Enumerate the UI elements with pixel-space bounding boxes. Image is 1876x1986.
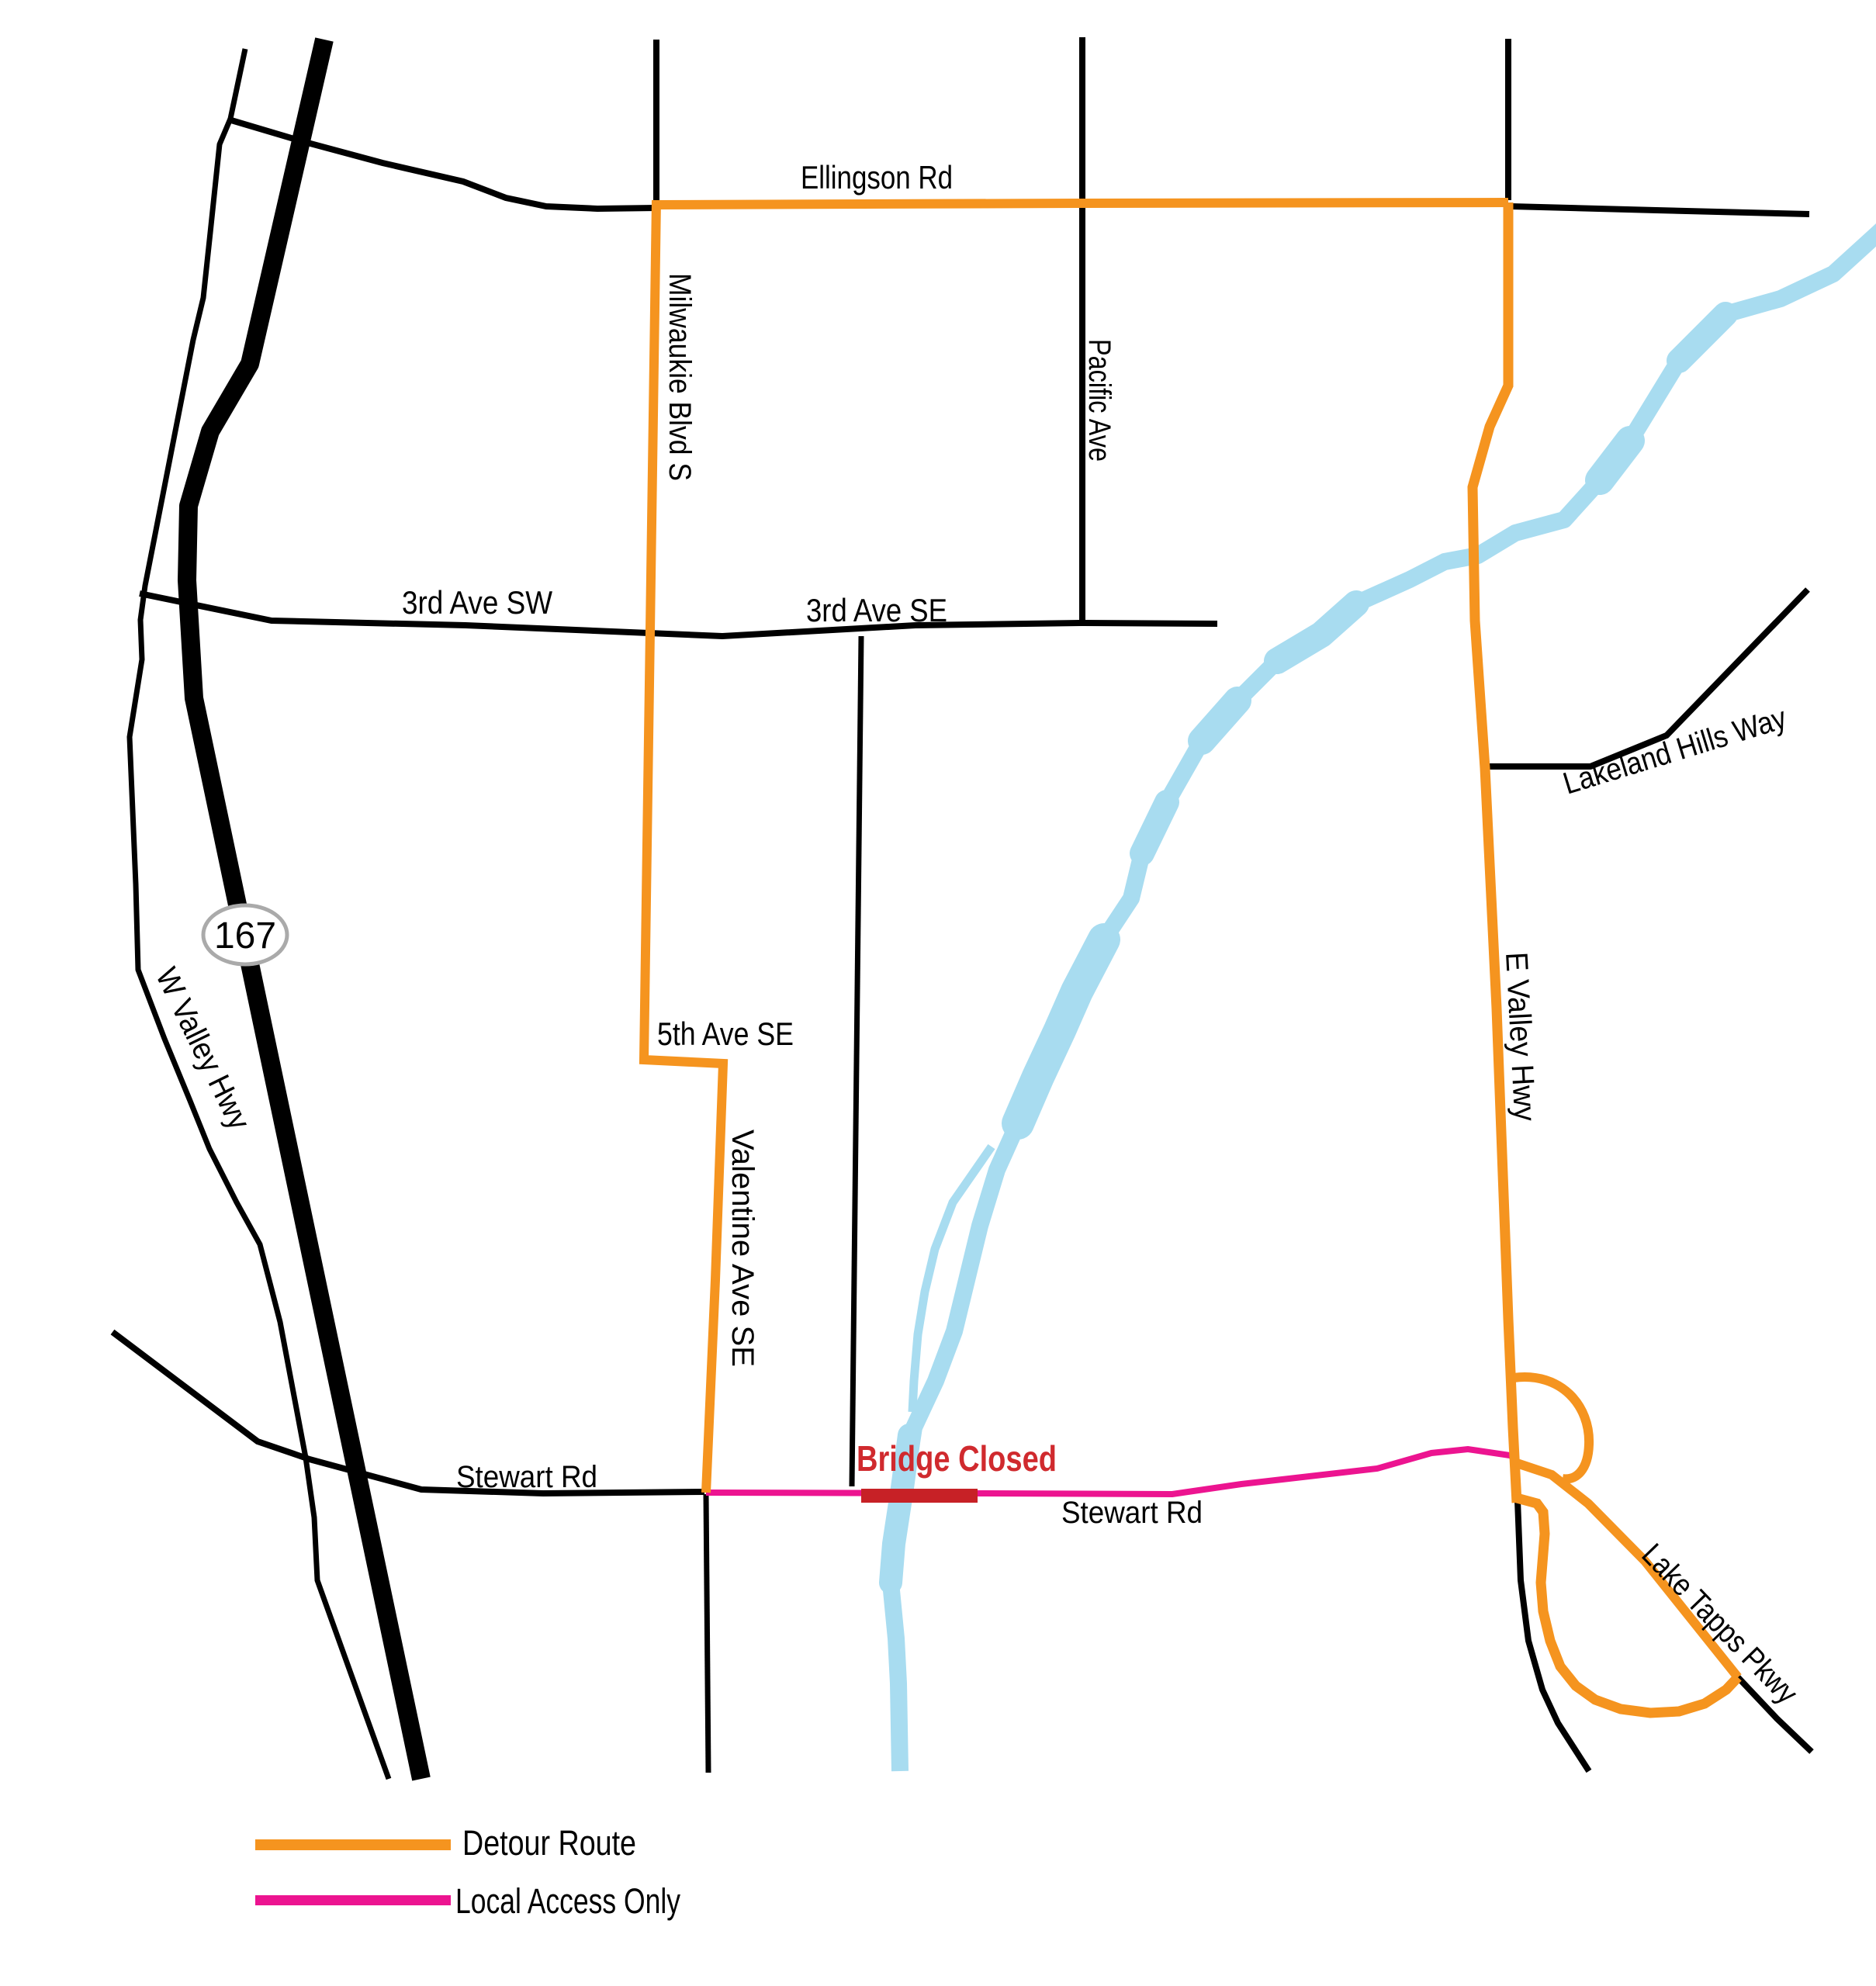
svg-text:167: 167	[214, 915, 276, 957]
svg-text:Milwaukie Blvd S: Milwaukie Blvd S	[663, 273, 697, 481]
svg-text:Stewart Rd: Stewart Rd	[456, 1460, 597, 1494]
svg-text:Pacific Ave: Pacific Ave	[1082, 339, 1116, 462]
svg-text:Local Access Only: Local Access Only	[455, 1881, 680, 1921]
svg-text:Detour Route: Detour Route	[462, 1823, 636, 1863]
svg-text:Valentine Ave SE: Valentine Ave SE	[725, 1130, 760, 1367]
svg-text:3rd Ave SW: 3rd Ave SW	[402, 584, 552, 621]
svg-text:Bridge Closed: Bridge Closed	[857, 1438, 1057, 1479]
svg-text:5th Ave SE: 5th Ave SE	[657, 1015, 794, 1052]
svg-text:Ellingson Rd: Ellingson Rd	[801, 159, 953, 195]
svg-text:3rd Ave SE: 3rd Ave SE	[806, 592, 947, 628]
svg-text:Stewart Rd: Stewart Rd	[1061, 1496, 1203, 1530]
